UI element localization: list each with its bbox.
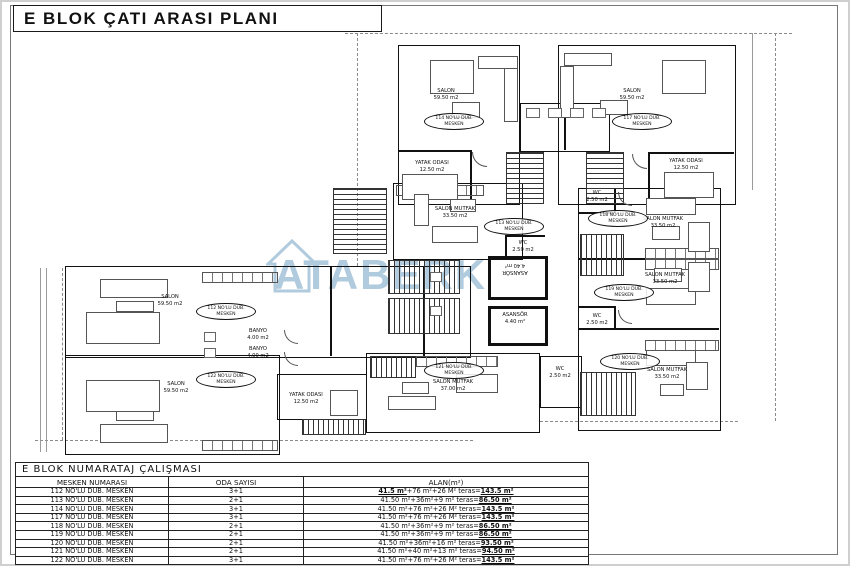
table-row: 122 NO'LU DUB. MESKEN 3+1 41.50 m²+76 m²… (16, 556, 589, 565)
wall-wc-119-h (578, 306, 614, 308)
room-label-salon-122: SALON 59.50 m2 (150, 381, 202, 394)
oda-cell: 3+1 (169, 505, 304, 514)
table-row: 117 NO'LU DUB. MESKEN 3+1 41.50 m²+76 m²… (16, 513, 589, 522)
room-label-wc-113: WC 2.50 m2 (508, 240, 538, 253)
staircase (388, 260, 460, 294)
alan-cell: 41.50 m²+36m²+9 m² teras=86.50 m² (304, 530, 589, 539)
unit-label-118: 118 NO'LU DUB. MESKEN (588, 210, 648, 227)
unit-label-119: 119 NO'LU DUB. MESKEN (594, 284, 654, 301)
oda-cell: 2+1 (169, 530, 304, 539)
alan-total: 143.5 m² (482, 505, 515, 513)
bath-fixture (430, 306, 442, 316)
room-label-salonmutfak-119: SALON MUTFAK 33.50 m2 (636, 272, 694, 285)
numbering-table: E BLOK NUMARATAJ ÇALIŞMASI MESKEN NUMARA… (15, 462, 589, 565)
sofa (504, 68, 518, 122)
alan-total: 143.5 m² (482, 556, 515, 564)
table-row: 121 NO'LU DUB. MESKEN 2+1 41.50 m²+40 m²… (16, 548, 589, 557)
mesken-cell: 117 NO'LU DUB. MESKEN (16, 513, 169, 522)
bath-fixture (204, 332, 216, 342)
alan-total: 86.50 m² (479, 522, 512, 530)
alan-cell: 41.5 m²+76 m²+26 M² teras=143.5 m² (304, 488, 589, 497)
alan-cell: 41.50 m²+40 m²+13 m² teras=94.50 m² (304, 548, 589, 557)
bath-fixture (204, 348, 216, 358)
bath-fixture (430, 272, 442, 282)
dining-table (432, 226, 478, 243)
alan-cell: 41.50 m²+76 m²+26 M² teras=143.5 m² (304, 556, 589, 565)
oda-cell: 3+1 (169, 513, 304, 522)
alan-cell: 41.50 m²+36m²+9 m² teras=86.50 m² (304, 522, 589, 531)
alan-text: 41.50 m²+76 m²+26 M² teras= (378, 556, 482, 564)
bath-fixture (526, 108, 540, 118)
bath-fixture (548, 108, 562, 118)
balcony-edge-inner (46, 268, 47, 452)
alan-cell: 41.50 m²+76 m²+26 M² teras=143.5 m² (304, 505, 589, 514)
alan-total: 143.5 m² (482, 513, 515, 521)
dining-table (100, 424, 168, 443)
unit-label-121: 121 NO'LU DUB. MESKEN (424, 362, 484, 379)
oda-cell: 2+1 (169, 539, 304, 548)
bed (402, 174, 458, 200)
alan-text: 41.50 m²+40 m²+13 m² teras= (377, 548, 482, 556)
staircase (370, 356, 416, 378)
wall-hall-wc-bottom (540, 356, 582, 408)
bath-fixture (592, 108, 606, 118)
unit-label-114: 114 NO'LU DUB. MESKEN (424, 113, 484, 130)
wall-wc-113-h (505, 235, 545, 237)
oda-cell: 3+1 (169, 556, 304, 565)
col-header-alan: ALAN(m²) (304, 477, 589, 488)
room-label-wc-bottom: WC 2.50 m2 (544, 366, 576, 379)
bed (664, 172, 714, 198)
alan-total: 86.50 m² (479, 530, 512, 538)
oda-cell: 2+1 (169, 496, 304, 505)
alan-cell: 41.50 m²+76 m²+26 M² teras=143.5 m² (304, 513, 589, 522)
staircase (506, 152, 544, 204)
alan-total: 93.50 m² (481, 539, 514, 547)
wall-divider-119-120 (578, 328, 719, 330)
sofa (388, 396, 436, 410)
wall-wc-119-v (614, 306, 616, 328)
sofa (86, 380, 160, 412)
col-header-oda: ODA SAYISI (169, 477, 304, 488)
staircase (302, 419, 366, 435)
sofa (86, 312, 160, 344)
unit-label-122: 122 NO'LU DUB. MESKEN (196, 371, 256, 388)
wall-bedroom-114-h (398, 150, 470, 152)
roof-edge-right (752, 33, 753, 190)
alan-text: 41.50 m²+76 m²+26 M² teras= (378, 505, 482, 513)
alan-total: 94.50 m² (482, 548, 515, 556)
table-row: 118 NO'LU DUB. MESKEN 2+1 41.50 m²+36m²+… (16, 522, 589, 531)
staircase (333, 188, 387, 254)
dining-table (646, 198, 696, 215)
room-label-elevator-1: ASANSÖR 4.40 m² (488, 262, 542, 275)
door-arc (284, 352, 298, 366)
table-row: 112 NO'LU DUB. MESKEN 3+1 41.5 m²+76 m²+… (16, 488, 589, 497)
room-label-banyo-122: BANYO 4.00 m2 (236, 346, 280, 359)
table-row: 114 NO'LU DUB. MESKEN 3+1 41.50 m²+76 m²… (16, 505, 589, 514)
bed (330, 390, 358, 416)
bath-fixture (570, 108, 584, 118)
mesken-cell: 112 NO'LU DUB. MESKEN (16, 488, 169, 497)
alan-text: 41.50 m²+36m²+9 m² teras= (380, 522, 478, 530)
staircase (388, 298, 460, 334)
alan-total: 143.5 m² (481, 488, 514, 496)
alan-text: 41.50 m²+36m²+9 m² teras= (380, 496, 478, 504)
coffee-table (660, 384, 684, 396)
mesken-cell: 119 NO'LU DUB. MESKEN (16, 530, 169, 539)
kitchen-counter (202, 272, 278, 283)
table-row: 113 NO'LU DUB. MESKEN 2+1 41.50 m²+36m²+… (16, 496, 589, 505)
unit-label-117: 117 NO'LU DUB. MESKEN (612, 113, 672, 130)
dining-table (662, 60, 706, 94)
alan-text: 41.50 m²+36m²+9 m² teras= (380, 530, 478, 538)
wall-wc-113-v (505, 235, 507, 258)
sofa (564, 53, 612, 66)
staircase (580, 234, 624, 276)
room-label-elevator-2: ASANSÖR 4.40 m² (488, 312, 542, 325)
unit-label-112: 112 NO'LU DUB. MESKEN (196, 303, 256, 320)
mesken-cell: 114 NO'LU DUB. MESKEN (16, 505, 169, 514)
room-label-bedroom-114: YATAK ODASI 12.50 m2 (404, 160, 460, 173)
wall-corridor-left-block (330, 266, 332, 356)
room-label-bedroom-117: YATAK ODASI 12.50 m2 (658, 158, 714, 171)
alan-cell: 41.50 m²+36m²+9 m² teras=86.50 m² (304, 496, 589, 505)
sheet: E BLOK ÇATI ARASI PLANI ATABERK (0, 0, 850, 566)
staircase (580, 372, 636, 416)
mesken-cell: 113 NO'LU DUB. MESKEN (16, 496, 169, 505)
room-label-bedroom-bottom: YATAK ODASI 12.50 m2 (282, 392, 330, 405)
room-label-salon-117: SALON 59.50 m2 (606, 88, 658, 101)
roof-boundary-top (345, 33, 792, 34)
unit-label-113: 113 NO'LU DUB. MESKEN (484, 218, 544, 235)
room-label-wc-118: WC 2.50 m2 (580, 190, 614, 203)
room-label-salonmutfak-113: SALON MUTFAK 33.50 m2 (424, 206, 486, 219)
mesken-cell: 120 NO'LU DUB. MESKEN (16, 539, 169, 548)
mesken-cell: 121 NO'LU DUB. MESKEN (16, 548, 169, 557)
table-row: 120 NO'LU DUB. MESKEN 2+1 41.50 m²+36m²+… (16, 539, 589, 548)
alan-total: 86.50 m² (479, 496, 512, 504)
balcony-edge-outer (40, 268, 41, 452)
mesken-cell: 122 NO'LU DUB. MESKEN (16, 556, 169, 565)
oda-cell: 3+1 (169, 488, 304, 497)
oda-cell: 2+1 (169, 548, 304, 557)
table-title: E BLOK NUMARATAJ ÇALIŞMASI (16, 463, 589, 477)
alan-lead: 41.5 m² (378, 488, 406, 496)
roof-boundary-right (775, 33, 776, 421)
alan-text: 41.50 m²+36m²+16 m² teras= (378, 539, 481, 547)
room-label-salon-114: SALON 59.50 m2 (420, 88, 472, 101)
oda-cell: 2+1 (169, 522, 304, 531)
col-header-mesken: MESKEN NUMARASI (16, 477, 169, 488)
room-label-wc-119: WC 2.50 m2 (580, 313, 614, 326)
room-label-salon-112: SALON 59.50 m2 (144, 294, 196, 307)
wall-bedroom-117-h (648, 152, 734, 154)
table-row: 119 NO'LU DUB. MESKEN 2+1 41.50 m²+36m²+… (16, 530, 589, 539)
unit-label-120: 120 NO'LU DUB. MESKEN (600, 353, 660, 370)
alan-text: 41.50 m²+76 m²+26 M² teras= (378, 513, 482, 521)
terrace-boundary-left (62, 268, 63, 440)
room-label-banyo-112: BANYO 4.00 m2 (236, 328, 280, 341)
mesken-cell: 118 NO'LU DUB. MESKEN (16, 522, 169, 531)
kitchen-counter (202, 440, 278, 451)
alan-text: +76 m²+26 M² teras= (407, 488, 481, 496)
room-label-salonmutfak-121: SALON MUTFAK 37.00 m2 (424, 379, 482, 392)
wall-bedroom-117-v (648, 152, 650, 203)
alan-cell: 41.50 m²+36m²+16 m² teras=93.50 m² (304, 539, 589, 548)
room-label-salonmutfak-120: SALON MUTFAK 33.50 m2 (638, 367, 696, 380)
